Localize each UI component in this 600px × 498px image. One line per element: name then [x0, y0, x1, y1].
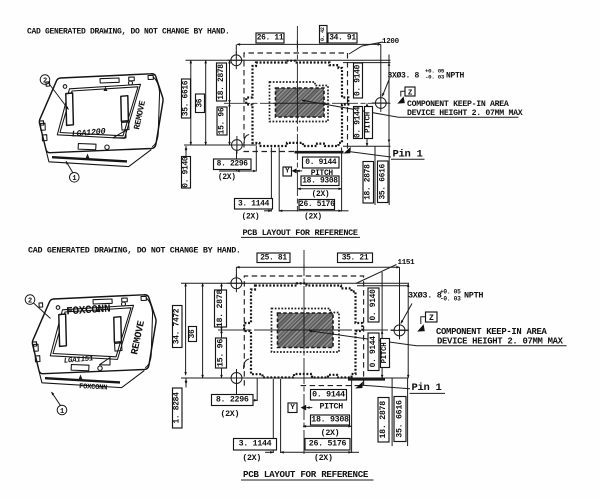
svg-text:0. 9144: 0. 9144	[369, 336, 378, 368]
svg-text:DEVICE HEIGHT 2. 07MM MAX: DEVICE HEIGHT 2. 07MM MAX	[437, 337, 564, 347]
svg-text:(2X): (2X)	[314, 453, 333, 463]
svg-text:PITCH: PITCH	[381, 343, 389, 364]
svg-text:2: 2	[43, 78, 47, 86]
svg-text:1. 8284: 1. 8284	[173, 392, 182, 424]
svg-text:(2X): (2X)	[220, 409, 239, 419]
svg-text:COMPONENT KEEP-IN AREA: COMPONENT KEEP-IN AREA	[407, 100, 509, 109]
svg-text:26. 5176: 26. 5176	[309, 440, 347, 449]
svg-text:18. 2878: 18. 2878	[216, 289, 225, 327]
svg-text:36: 36	[188, 329, 197, 338]
svg-text:0. 9140: 0. 9140	[369, 289, 378, 321]
svg-text:(2X): (2X)	[242, 213, 260, 222]
svg-text:(2X): (2X)	[304, 213, 322, 222]
svg-text:36: 36	[196, 98, 205, 107]
svg-text:3. 1144: 3. 1144	[239, 440, 272, 449]
svg-text:(2X): (2X)	[321, 428, 340, 438]
svg-text:PITCH: PITCH	[365, 112, 373, 133]
svg-text:0. 9140: 0. 9140	[182, 156, 191, 188]
svg-text:CAD GENERATED DRAWING, DO NOT: CAD GENERATED DRAWING, DO NOT CHANGE BY …	[28, 246, 241, 256]
svg-text:26. 11: 26. 11	[257, 34, 284, 43]
svg-text:(2X): (2X)	[218, 173, 236, 182]
svg-text:0. 9144: 0. 9144	[305, 158, 337, 167]
svg-text:Pin 1: Pin 1	[412, 382, 442, 394]
svg-text:18. 2878: 18. 2878	[379, 401, 388, 439]
svg-text:18. 2878: 18. 2878	[364, 164, 373, 200]
svg-text:NPTH: NPTH	[446, 72, 465, 81]
svg-text:PITCH: PITCH	[311, 169, 334, 178]
svg-text:Z: Z	[429, 314, 434, 323]
svg-text:35. 6616: 35. 6616	[182, 80, 191, 116]
svg-text:FOXCONN: FOXCONN	[79, 383, 107, 392]
svg-text:8. 2296: 8. 2296	[217, 160, 249, 169]
svg-text:8. 2296: 8. 2296	[216, 396, 249, 405]
svg-text:26. 5176: 26. 5176	[299, 200, 335, 209]
svg-text:0. 42: 0. 42	[320, 27, 326, 41]
svg-text:DEVICE HEIGHT 2. 07MM MAX: DEVICE HEIGHT 2. 07MM MAX	[407, 109, 523, 118]
svg-text:0. 9140: 0. 9140	[354, 64, 363, 96]
svg-text:NPTH: NPTH	[464, 291, 483, 301]
svg-text:1: 1	[72, 175, 76, 183]
svg-text:PCB LAYOUT FOR REFERENCE: PCB LAYOUT FOR REFERENCE	[243, 228, 358, 238]
svg-text:34. 7472: 34. 7472	[173, 308, 182, 344]
svg-text:18. 2878: 18. 2878	[217, 64, 226, 100]
svg-text:1200: 1200	[382, 38, 400, 46]
svg-text:0. 9144: 0. 9144	[312, 390, 345, 399]
svg-text:15. 96: 15. 96	[218, 107, 227, 134]
svg-text:1151: 1151	[398, 259, 416, 267]
svg-text:1: 1	[60, 408, 64, 416]
svg-text:CAD GENERATED DRAWING, DO NOT: CAD GENERATED DRAWING, DO NOT CHANGE BY …	[27, 27, 230, 36]
svg-text:0. 9144: 0. 9144	[354, 106, 363, 138]
svg-text:3. 1144: 3. 1144	[238, 199, 270, 208]
svg-text:+0. 05: +0. 05	[440, 288, 461, 295]
svg-text:35. 21: 35. 21	[342, 253, 369, 262]
svg-text:-0. 03: -0. 03	[425, 74, 445, 81]
svg-text:(2X): (2X)	[242, 453, 261, 463]
svg-text:3XØ3. 8: 3XØ3. 8	[388, 72, 420, 81]
svg-text:(2X): (2X)	[312, 190, 330, 199]
svg-text:3XØ3. 8: 3XØ3. 8	[408, 291, 442, 301]
svg-text:15. 96: 15. 96	[217, 339, 226, 367]
svg-text:35. 6616: 35. 6616	[378, 163, 387, 199]
svg-text:35. 6616: 35. 6616	[396, 400, 405, 438]
svg-text:PITCH: PITCH	[320, 403, 344, 412]
svg-text:25. 81: 25. 81	[260, 253, 287, 262]
svg-text:PCB LAYOUT FOR REFERENCE: PCB LAYOUT FOR REFERENCE	[243, 469, 369, 480]
svg-text:-0. 03: -0. 03	[440, 296, 461, 303]
svg-text:34. 91: 34. 91	[329, 34, 356, 43]
svg-text:2: 2	[28, 298, 32, 306]
svg-text:18. 9308: 18. 9308	[311, 416, 349, 425]
